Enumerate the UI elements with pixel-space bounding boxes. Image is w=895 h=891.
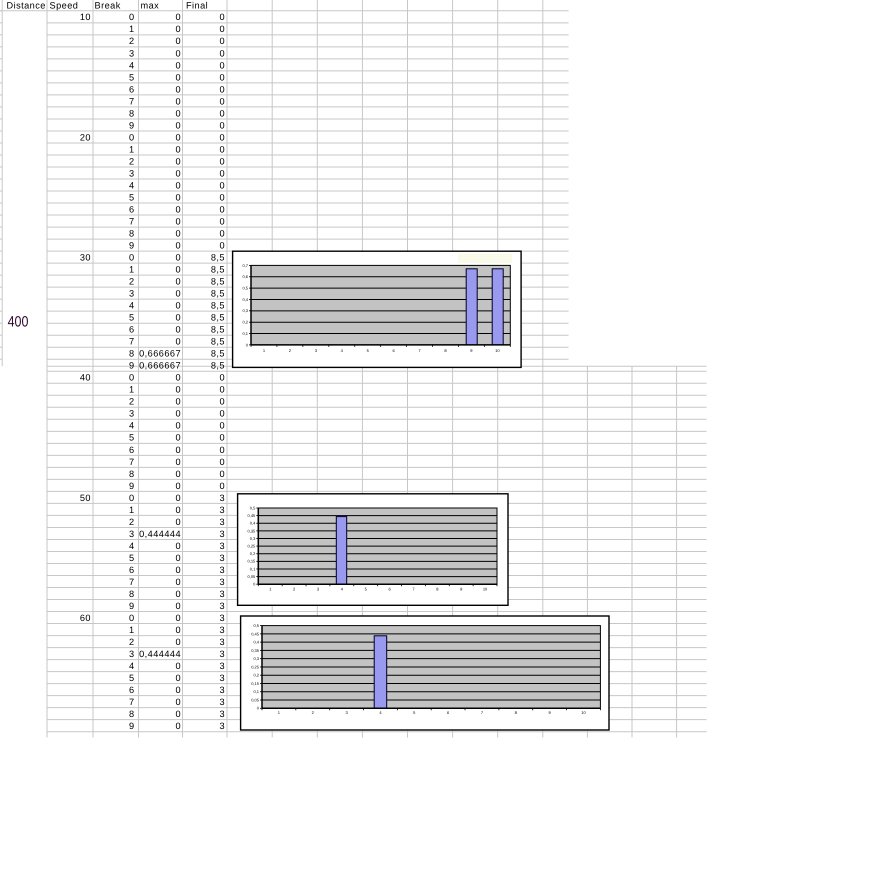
svg-text:8,5: 8,5 — [211, 253, 225, 263]
svg-text:0,05: 0,05 — [248, 574, 257, 579]
svg-text:0: 0 — [129, 493, 135, 503]
svg-text:0: 0 — [175, 625, 181, 635]
svg-text:max: max — [141, 1, 160, 11]
svg-text:0: 0 — [219, 48, 225, 58]
svg-text:0,1: 0,1 — [242, 331, 248, 336]
svg-text:0: 0 — [175, 132, 181, 142]
svg-text:Distance: Distance — [7, 1, 46, 11]
svg-text:0: 0 — [219, 228, 225, 238]
svg-text:0: 0 — [219, 132, 225, 142]
svg-text:0: 0 — [175, 241, 181, 251]
svg-text:3: 3 — [219, 721, 225, 731]
svg-text:0: 0 — [175, 301, 181, 311]
svg-text:40: 40 — [80, 373, 91, 383]
svg-text:3: 3 — [129, 649, 135, 659]
svg-text:8,5: 8,5 — [211, 301, 225, 311]
svg-text:0,05: 0,05 — [251, 697, 260, 702]
svg-text:10: 10 — [80, 12, 91, 22]
svg-text:400: 400 — [8, 313, 29, 330]
svg-text:3: 3 — [219, 529, 225, 539]
svg-text:4: 4 — [129, 301, 135, 311]
svg-text:0: 0 — [219, 96, 225, 106]
svg-text:0: 0 — [175, 457, 181, 467]
svg-text:0,3: 0,3 — [253, 656, 259, 661]
svg-text:5: 5 — [129, 72, 135, 82]
svg-text:0: 0 — [175, 325, 181, 335]
svg-text:Speed: Speed — [50, 1, 79, 11]
svg-text:5: 5 — [129, 673, 135, 683]
svg-text:30: 30 — [80, 253, 91, 263]
svg-text:3: 3 — [219, 505, 225, 515]
svg-text:0: 0 — [175, 48, 181, 58]
svg-text:0: 0 — [175, 589, 181, 599]
svg-text:0: 0 — [219, 168, 225, 178]
svg-text:0: 0 — [175, 433, 181, 443]
svg-text:0: 0 — [219, 481, 225, 491]
svg-text:0: 0 — [175, 385, 181, 395]
svg-text:0: 0 — [175, 12, 181, 22]
svg-text:0: 0 — [175, 721, 181, 731]
svg-text:8: 8 — [129, 108, 135, 118]
svg-text:0: 0 — [175, 108, 181, 118]
svg-text:10: 10 — [495, 348, 500, 353]
svg-text:0: 0 — [175, 216, 181, 226]
svg-text:0: 0 — [219, 120, 225, 130]
svg-text:0: 0 — [175, 337, 181, 347]
svg-text:0: 0 — [129, 373, 135, 383]
svg-text:0: 0 — [219, 60, 225, 70]
svg-text:0,666667: 0,666667 — [139, 349, 181, 359]
svg-text:50: 50 — [80, 493, 91, 503]
svg-text:0: 0 — [175, 673, 181, 683]
svg-text:0: 0 — [175, 685, 181, 695]
svg-text:0: 0 — [175, 144, 181, 154]
svg-text:0: 0 — [129, 12, 135, 22]
svg-text:0: 0 — [175, 541, 181, 551]
svg-text:0: 0 — [175, 168, 181, 178]
svg-text:0: 0 — [219, 469, 225, 479]
svg-text:1: 1 — [129, 265, 135, 275]
svg-text:0: 0 — [219, 156, 225, 166]
svg-text:0,35: 0,35 — [251, 648, 260, 653]
svg-text:3: 3 — [219, 493, 225, 503]
svg-text:20: 20 — [80, 132, 91, 142]
svg-text:5: 5 — [129, 433, 135, 443]
svg-text:7: 7 — [129, 577, 135, 587]
svg-text:0,2: 0,2 — [242, 320, 248, 325]
svg-text:3: 3 — [129, 168, 135, 178]
svg-text:9: 9 — [129, 241, 135, 251]
svg-text:7: 7 — [129, 697, 135, 707]
svg-text:0: 0 — [175, 253, 181, 263]
svg-text:3: 3 — [129, 289, 135, 299]
svg-text:1: 1 — [129, 625, 135, 635]
svg-text:0,15: 0,15 — [251, 681, 260, 686]
svg-text:0: 0 — [175, 180, 181, 190]
svg-text:0: 0 — [175, 156, 181, 166]
svg-text:7: 7 — [129, 457, 135, 467]
svg-text:0: 0 — [219, 409, 225, 419]
svg-text:0,25: 0,25 — [248, 544, 257, 549]
svg-text:3: 3 — [219, 661, 225, 671]
svg-text:0: 0 — [175, 469, 181, 479]
svg-text:0,35: 0,35 — [248, 528, 257, 533]
svg-text:8,5: 8,5 — [211, 337, 225, 347]
svg-text:2: 2 — [129, 637, 135, 647]
svg-text:8,5: 8,5 — [211, 277, 225, 287]
svg-text:0: 0 — [129, 253, 135, 263]
svg-text:0: 0 — [175, 313, 181, 323]
svg-text:0: 0 — [175, 277, 181, 287]
svg-text:0: 0 — [219, 433, 225, 443]
svg-text:7: 7 — [129, 96, 135, 106]
svg-text:3: 3 — [219, 625, 225, 635]
svg-text:3: 3 — [129, 529, 135, 539]
svg-text:0: 0 — [175, 228, 181, 238]
svg-text:5: 5 — [129, 553, 135, 563]
svg-text:0,25: 0,25 — [251, 664, 260, 669]
svg-text:5: 5 — [129, 192, 135, 202]
svg-text:0: 0 — [175, 120, 181, 130]
svg-text:0: 0 — [175, 505, 181, 515]
svg-text:6: 6 — [129, 325, 135, 335]
svg-text:6: 6 — [129, 685, 135, 695]
svg-text:0: 0 — [219, 445, 225, 455]
svg-text:0: 0 — [219, 457, 225, 467]
svg-text:8: 8 — [129, 228, 135, 238]
svg-text:1: 1 — [129, 144, 135, 154]
svg-text:Final: Final — [186, 1, 208, 11]
svg-text:3: 3 — [219, 649, 225, 659]
svg-text:0,6: 0,6 — [242, 274, 248, 279]
svg-text:0: 0 — [219, 180, 225, 190]
svg-text:3: 3 — [219, 613, 225, 623]
svg-text:0: 0 — [175, 697, 181, 707]
svg-text:0: 0 — [129, 613, 135, 623]
svg-text:60: 60 — [80, 613, 91, 623]
svg-text:4: 4 — [129, 541, 135, 551]
svg-text:0: 0 — [175, 661, 181, 671]
svg-text:0: 0 — [219, 397, 225, 407]
svg-text:0: 0 — [175, 421, 181, 431]
svg-text:0: 0 — [175, 96, 181, 106]
svg-text:3: 3 — [219, 565, 225, 575]
svg-text:0,5: 0,5 — [253, 623, 259, 628]
svg-text:0,45: 0,45 — [251, 631, 260, 636]
svg-text:8: 8 — [129, 469, 135, 479]
svg-text:0: 0 — [219, 24, 225, 34]
svg-text:0: 0 — [219, 373, 225, 383]
svg-text:8,5: 8,5 — [211, 313, 225, 323]
svg-text:9: 9 — [129, 721, 135, 731]
svg-text:7: 7 — [129, 216, 135, 226]
svg-text:2: 2 — [129, 517, 135, 527]
svg-text:0,5: 0,5 — [250, 505, 256, 510]
svg-text:0,45: 0,45 — [248, 513, 257, 518]
svg-text:0: 0 — [219, 192, 225, 202]
svg-text:8: 8 — [129, 589, 135, 599]
svg-text:4: 4 — [129, 421, 135, 431]
svg-text:2: 2 — [129, 36, 135, 46]
svg-text:3: 3 — [219, 697, 225, 707]
svg-text:0: 0 — [175, 24, 181, 34]
svg-text:0: 0 — [175, 553, 181, 563]
svg-text:9: 9 — [129, 481, 135, 491]
svg-text:0: 0 — [175, 445, 181, 455]
svg-text:6: 6 — [129, 445, 135, 455]
svg-text:0: 0 — [175, 289, 181, 299]
svg-text:0: 0 — [175, 373, 181, 383]
svg-text:0,3: 0,3 — [242, 308, 248, 313]
svg-text:0: 0 — [219, 144, 225, 154]
svg-text:9: 9 — [129, 361, 135, 371]
svg-text:0: 0 — [175, 517, 181, 527]
svg-text:0,4: 0,4 — [250, 521, 256, 526]
svg-text:3: 3 — [219, 577, 225, 587]
svg-text:8,5: 8,5 — [211, 325, 225, 335]
svg-text:2: 2 — [129, 156, 135, 166]
svg-text:3: 3 — [219, 541, 225, 551]
svg-text:3: 3 — [219, 601, 225, 611]
svg-text:9: 9 — [129, 120, 135, 130]
svg-text:0: 0 — [175, 204, 181, 214]
svg-text:0: 0 — [175, 601, 181, 611]
svg-text:0: 0 — [219, 84, 225, 94]
svg-text:1: 1 — [129, 24, 135, 34]
svg-text:6: 6 — [129, 84, 135, 94]
svg-text:0: 0 — [175, 613, 181, 623]
svg-text:Break: Break — [95, 1, 121, 11]
svg-text:0: 0 — [175, 192, 181, 202]
svg-text:3: 3 — [219, 589, 225, 599]
svg-text:4: 4 — [129, 60, 135, 70]
svg-text:0: 0 — [219, 204, 225, 214]
svg-text:2: 2 — [129, 277, 135, 287]
svg-text:0: 0 — [175, 84, 181, 94]
svg-text:0: 0 — [219, 72, 225, 82]
svg-text:0: 0 — [219, 12, 225, 22]
svg-text:0: 0 — [175, 565, 181, 575]
svg-text:8: 8 — [129, 709, 135, 719]
svg-text:3: 3 — [219, 685, 225, 695]
svg-text:0: 0 — [175, 577, 181, 587]
svg-text:3: 3 — [129, 409, 135, 419]
svg-text:0: 0 — [219, 241, 225, 251]
svg-text:0: 0 — [129, 132, 135, 142]
svg-text:6: 6 — [129, 204, 135, 214]
svg-text:8,5: 8,5 — [211, 265, 225, 275]
svg-text:5: 5 — [129, 313, 135, 323]
svg-text:0,3: 0,3 — [250, 536, 256, 541]
svg-text:0: 0 — [175, 36, 181, 46]
svg-text:8,5: 8,5 — [211, 289, 225, 299]
svg-text:0: 0 — [219, 108, 225, 118]
svg-text:7: 7 — [129, 337, 135, 347]
svg-text:0: 0 — [219, 216, 225, 226]
svg-text:0: 0 — [219, 421, 225, 431]
svg-text:0: 0 — [219, 385, 225, 395]
svg-text:0,1: 0,1 — [253, 689, 259, 694]
svg-text:0,4: 0,4 — [253, 640, 259, 645]
svg-text:8: 8 — [129, 349, 135, 359]
svg-text:3: 3 — [219, 709, 225, 719]
svg-text:1: 1 — [129, 505, 135, 515]
svg-text:0,444444: 0,444444 — [139, 529, 181, 539]
svg-text:0: 0 — [175, 637, 181, 647]
svg-text:0: 0 — [175, 397, 181, 407]
svg-text:4: 4 — [129, 180, 135, 190]
svg-text:3: 3 — [219, 553, 225, 563]
svg-text:0,5: 0,5 — [242, 286, 248, 291]
svg-text:10: 10 — [483, 587, 488, 592]
svg-text:3: 3 — [219, 673, 225, 683]
svg-text:0: 0 — [175, 409, 181, 419]
svg-text:9: 9 — [129, 601, 135, 611]
svg-text:0,7: 0,7 — [242, 263, 248, 268]
svg-text:6: 6 — [129, 565, 135, 575]
svg-text:0,2: 0,2 — [250, 551, 256, 556]
svg-text:0,2: 0,2 — [253, 673, 259, 678]
svg-text:1: 1 — [129, 385, 135, 395]
svg-text:3: 3 — [219, 637, 225, 647]
svg-text:0,1: 0,1 — [250, 566, 256, 571]
svg-text:8,5: 8,5 — [211, 361, 225, 371]
svg-text:0: 0 — [175, 709, 181, 719]
svg-text:4: 4 — [129, 661, 135, 671]
svg-text:8,5: 8,5 — [211, 349, 225, 359]
svg-text:0: 0 — [175, 72, 181, 82]
svg-text:0: 0 — [219, 36, 225, 46]
svg-text:3: 3 — [129, 48, 135, 58]
svg-text:2: 2 — [129, 397, 135, 407]
svg-text:0,15: 0,15 — [248, 559, 257, 564]
svg-text:0: 0 — [175, 481, 181, 491]
svg-text:0: 0 — [175, 265, 181, 275]
svg-text:0,4: 0,4 — [242, 297, 248, 302]
svg-text:0,444444: 0,444444 — [139, 649, 181, 659]
svg-text:0: 0 — [175, 60, 181, 70]
svg-text:0,666667: 0,666667 — [139, 361, 181, 371]
svg-text:3: 3 — [219, 517, 225, 527]
svg-text:0: 0 — [175, 493, 181, 503]
svg-text:10: 10 — [581, 710, 586, 715]
